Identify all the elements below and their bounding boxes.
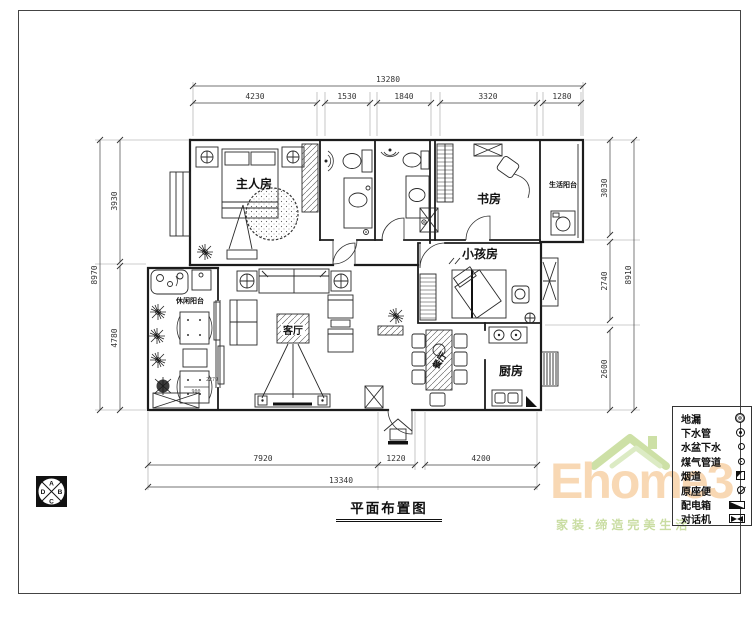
dim-top-seg: 1280: [552, 92, 571, 101]
plant-icon: [150, 352, 166, 368]
legend-row: 下水管: [681, 425, 745, 439]
plant-icon: [388, 308, 404, 324]
room-label-leisure-balcony: 休闲阳台: [175, 296, 204, 305]
study-room: 书房: [437, 144, 529, 206]
drawing-title: 平面布置图: [336, 497, 442, 522]
legend-label: 煤气管道: [681, 454, 721, 469]
legend-row: 煤气管道: [681, 454, 745, 468]
legend-row: 配电箱: [681, 497, 745, 511]
dim-bottom-seg: 7920: [253, 454, 272, 463]
legend-row: 烟道: [681, 469, 745, 483]
distribution-box-icon: [729, 501, 745, 509]
room-label-study: 书房: [477, 191, 501, 206]
plant-icon: [149, 328, 165, 344]
room-label-master: 主人房: [236, 176, 272, 191]
legend-label: 对话机: [681, 511, 711, 526]
floor-drain-icon: [735, 413, 745, 423]
dimension-right: 3030 2740 2600 8910: [545, 137, 640, 413]
elevation-letter-left: D: [41, 489, 46, 496]
toilet-icon: [737, 486, 745, 494]
dim-right-seg: 3030: [600, 178, 609, 197]
dim-top-total: 13280: [376, 75, 400, 84]
dim-right-seg: 2600: [600, 359, 609, 378]
room-label-kitchen: 厨房: [499, 363, 523, 378]
master-bathroom: [325, 150, 373, 235]
room-label-life-balcony: 生活阳台: [549, 180, 577, 189]
intercom-icon: [729, 514, 745, 523]
dim-top-seg: 4230: [245, 92, 264, 101]
legend-label: 原座便: [681, 483, 711, 498]
basin-drain-icon: [738, 443, 745, 450]
plant-icon: [150, 304, 166, 320]
plant-icon: [197, 244, 213, 260]
dim-top-seg: 1840: [394, 92, 413, 101]
gas-pipe-icon: [738, 458, 745, 465]
legend-label: 水盆下水: [681, 439, 721, 454]
legend-label: 配电箱: [681, 497, 711, 512]
dimension-top: 13280 4230 1530 1840 3320 1280: [190, 75, 586, 136]
dim-bottom-seg: 4200: [471, 454, 490, 463]
second-bathroom: [381, 149, 429, 225]
legend-box: 地漏 下水管 水盆下水 煤气管道 烟道 原座便 配电箱 对话机: [672, 406, 752, 526]
kitchen: 厨房: [489, 327, 537, 407]
kids-room: 小孩房: [420, 246, 535, 323]
elevation-letter-top: A: [49, 481, 54, 488]
legend-label: 下水管: [681, 425, 711, 440]
dim-right-seg: 2740: [600, 271, 609, 290]
dim-right-total: 8910: [624, 265, 633, 284]
dim-left-total: 8970: [90, 265, 99, 284]
floor-plan-sheet: 主人房: [0, 0, 756, 630]
room-label-living: 客厅: [282, 324, 303, 337]
floor-plan-drawing: 主人房: [0, 0, 756, 630]
leisure-balcony: 2279 900 休闲阳台: [149, 270, 218, 408]
legend-row: 对话机: [681, 512, 745, 526]
dim-bottom-total: 13340: [329, 476, 353, 485]
legend-label: 地漏: [681, 411, 701, 426]
dim-bottom-seg: 1220: [386, 454, 405, 463]
flue-icon: [736, 471, 745, 480]
down-pipe-icon: [736, 428, 745, 437]
elevation-marker: A B C D: [36, 476, 67, 507]
legend-row: 水盆下水: [681, 440, 745, 454]
dimension-left: 8970 3930 4780: [90, 137, 188, 413]
living-room: 客厅: [230, 269, 383, 408]
legend-label: 烟道: [681, 468, 701, 483]
dim-left-seg: 3930: [110, 191, 119, 210]
elevation-letter-right: B: [58, 489, 63, 496]
legend-row: 地漏: [681, 411, 745, 425]
life-balcony: 生活阳台: [549, 180, 577, 235]
balcony-minor-dim: 2279: [206, 377, 218, 383]
dimension-bottom: 7920 1220 4200 13340: [145, 412, 540, 490]
dim-top-seg: 1530: [337, 92, 356, 101]
dim-top-seg: 3320: [478, 92, 497, 101]
legend-row: 原座便: [681, 483, 745, 497]
dim-left-seg: 4780: [110, 328, 119, 347]
master-bedroom: 主人房: [196, 144, 318, 260]
elevation-letter-bottom: C: [49, 499, 54, 506]
room-label-kids: 小孩房: [462, 246, 498, 261]
